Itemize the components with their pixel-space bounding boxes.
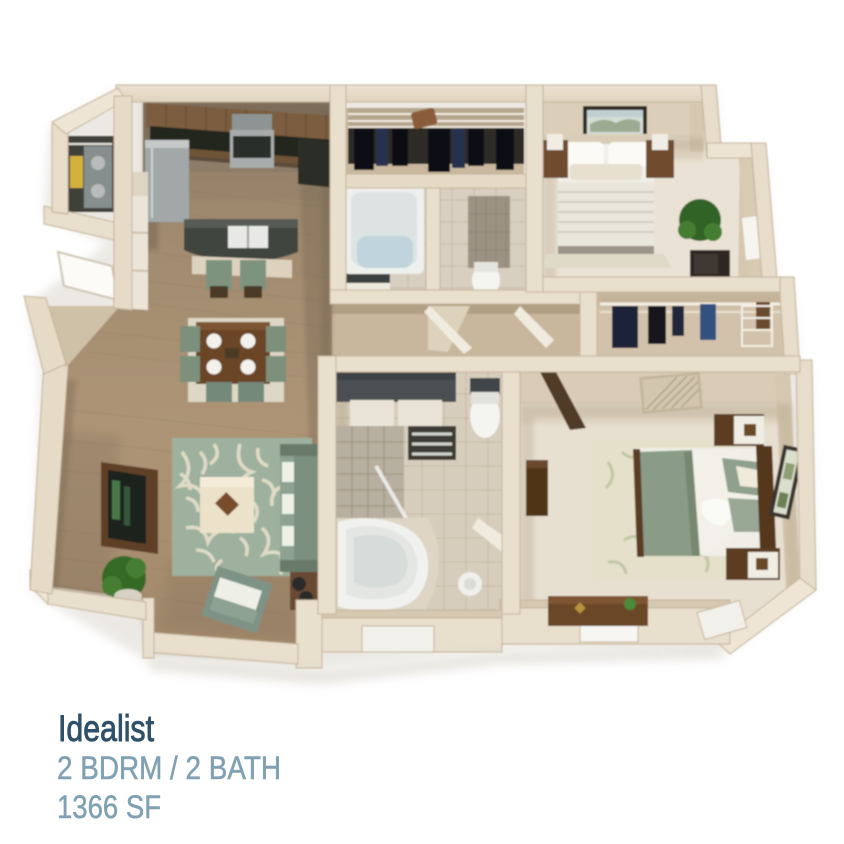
svg-text:1366 SF: 1366 SF: [57, 789, 161, 825]
svg-text:Idealist: Idealist: [58, 708, 155, 749]
svg-text:2 BDRM / 2 BATH: 2 BDRM / 2 BATH: [57, 750, 281, 786]
